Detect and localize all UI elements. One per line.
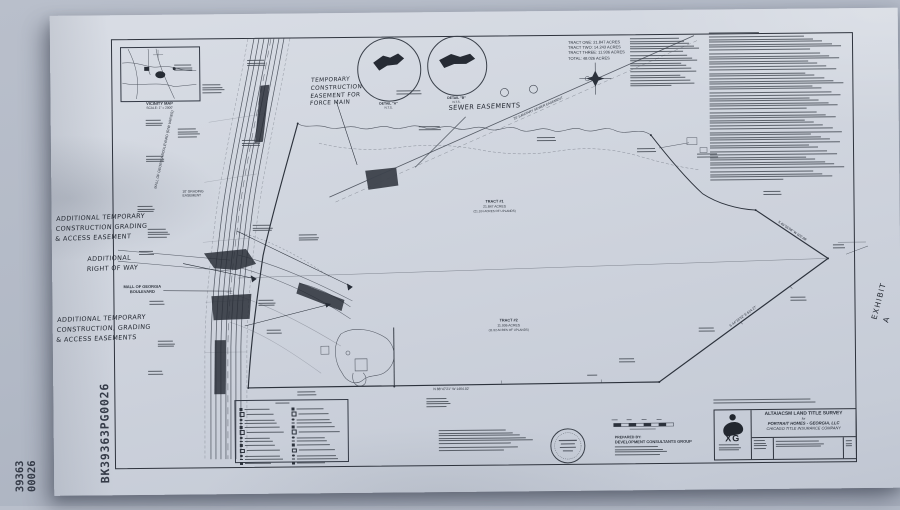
illegible-text-block <box>258 300 275 308</box>
handwritten-temp-easement-note: TEMPORARY CONSTRUCTION EASEMENT FOR FORC… <box>310 76 363 109</box>
firm-logo-sub-lines <box>719 444 741 452</box>
illegible-text-block <box>699 327 715 332</box>
illegible-text-block <box>619 358 635 363</box>
firm-logo-text: XG <box>715 433 751 443</box>
plat-content: TRACT #1 21.847 ACRES (21.104 ACRES OF U… <box>0 0 900 510</box>
book-page-stamp: BK39363PG0026 <box>97 383 112 484</box>
title-block-grid <box>752 436 856 459</box>
grid-divider <box>773 438 774 459</box>
vicinity-map-scale: SCALE: 1" = 2000' <box>121 105 199 110</box>
detail-circle-b <box>427 36 488 97</box>
legend-box <box>234 399 349 463</box>
grading-easement-label: 10' GRADING EASEMENT <box>182 189 203 198</box>
illegible-text-block <box>833 244 845 249</box>
illegible-text-block <box>146 120 163 128</box>
illegible-text-block <box>299 234 319 242</box>
illegible-text-block <box>587 375 597 378</box>
illegible-text-block <box>158 341 175 349</box>
illegible-text-block <box>396 90 421 95</box>
acreage-summary: TRACT ONE: 21.847 ACRES TRACT TWO: 14.24… <box>568 39 625 60</box>
prepared-by-block: PREPARED BY: DEVELOPMENT CONSULTANTS GRO… <box>615 435 695 457</box>
prepared-by-address-lines <box>615 446 695 456</box>
grading-easement-line2: EASEMENT <box>182 194 203 198</box>
title-block-pre-lines <box>713 398 815 404</box>
handwritten-note-b: ADDITIONAL RIGHT OF WAY <box>87 253 139 275</box>
illegible-text-block <box>253 225 273 233</box>
illegible-text-block <box>247 60 266 68</box>
illegible-text-block <box>139 251 154 256</box>
summary-line: TRACT THREE: 11.936 ACRES <box>568 50 625 56</box>
grid-values <box>776 440 824 448</box>
illegible-text-block <box>148 371 163 376</box>
revision-notes-block <box>426 398 450 409</box>
underwriter-name: CHICAGO TITLE INSURANCE COMPANY <box>752 425 856 431</box>
doc-number-line1: 39363 <box>14 460 26 492</box>
illegible-text-block <box>148 229 170 240</box>
notes-column-1 <box>630 38 699 88</box>
grid-marks <box>846 440 852 448</box>
vicinity-map-box <box>120 46 201 102</box>
illegible-text-block <box>146 156 165 164</box>
title-block-main: ALTA/ACSM LAND TITLE SURVEY for PORTRAIT… <box>752 409 856 459</box>
road-label-line2: BOULEVARD <box>116 290 168 295</box>
handwritten-note-c: ADDITIONAL TEMPORARY CONSTRUCTION, GRADI… <box>56 313 152 346</box>
illegible-text-block <box>297 391 316 396</box>
summary-line: TOTAL: 48.026 ACRES <box>568 55 625 61</box>
legend-title-line <box>275 403 289 406</box>
illegible-text-block <box>267 330 282 335</box>
road-label: MALL OF GEORGIA BOULEVARD <box>116 285 168 295</box>
doc-number-line2: 00026 <box>26 460 38 492</box>
illegible-text-block <box>178 128 200 139</box>
firm-logo-cell: XG <box>715 410 752 459</box>
photo-background: TRACT #1 21.847 ACRES (21.104 ACRES OF U… <box>0 0 900 506</box>
grid-labels <box>754 440 768 451</box>
grid-divider <box>843 437 844 458</box>
legend-column-1 <box>239 408 284 467</box>
notes-header-line <box>709 32 759 35</box>
illegible-text-block <box>419 126 441 131</box>
illegible-text-block <box>202 84 224 95</box>
notes-column-2 <box>709 35 844 182</box>
prepared-by-company: DEVELOPMENT CONSULTANTS GROUP <box>615 439 695 445</box>
illegible-text-block <box>697 153 718 158</box>
illegible-text-block <box>537 137 556 142</box>
illegible-text-block <box>149 301 164 306</box>
document-number-stamp: 39363 00026 <box>14 460 38 492</box>
hw-line: RIGHT OF WAY <box>87 263 139 275</box>
certification-text-block <box>439 429 533 452</box>
legend-column-2 <box>291 407 339 466</box>
illegible-text-block <box>790 297 806 302</box>
illegible-text-block <box>174 64 193 72</box>
illegible-text-block <box>242 140 261 148</box>
detail-a-sub: N.T.S. <box>358 106 420 110</box>
title-block: XG ALTA/ACSM LAND TITLE SURVEY for PORTR… <box>714 408 857 460</box>
illegible-text-block <box>763 191 781 196</box>
illegible-text-block <box>637 148 656 153</box>
handwritten-note-a: ADDITIONAL TEMPORARY CONSTRUCTION GRADIN… <box>55 212 148 245</box>
